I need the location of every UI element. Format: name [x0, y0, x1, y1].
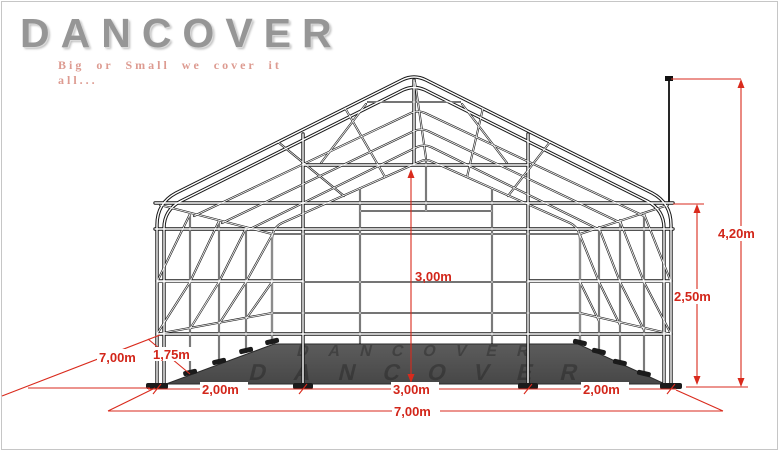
floor-watermark-rear: DANCOVER: [295, 342, 551, 360]
dim-total-height-label: 4,20m: [718, 226, 755, 241]
logo-title: DANCOVER: [20, 10, 318, 57]
logo-block: DANCOVER Big or Small we cover it all...: [12, 8, 318, 82]
logo-tagline: Big or Small we cover it all...: [58, 58, 318, 88]
rear-gable-frame: [272, 160, 580, 343]
dim-left-section-label: 2,00m: [202, 382, 239, 397]
dim-eave-height-label: 2,50m: [674, 289, 711, 304]
ridge-height-reference-line: [665, 76, 673, 202]
dim-front-width-label: 7,00m: [394, 404, 431, 419]
dim-door-width-label: 3,00m: [393, 382, 430, 397]
front-gable-frame: [155, 77, 673, 385]
dim-side-depth-label: 7,00m: [99, 350, 136, 365]
drawing-page: DANCOVER DANCOVER: [0, 0, 781, 454]
frame-tubes-highlight: [155, 77, 673, 385]
dim-bay-spacing-label: 1,75m: [153, 347, 190, 362]
dim-door-height-label: 3,00m: [415, 269, 452, 284]
dim-right-section-label: 2,00m: [583, 382, 620, 397]
floor-groundsheet: DANCOVER DANCOVER: [166, 342, 665, 385]
